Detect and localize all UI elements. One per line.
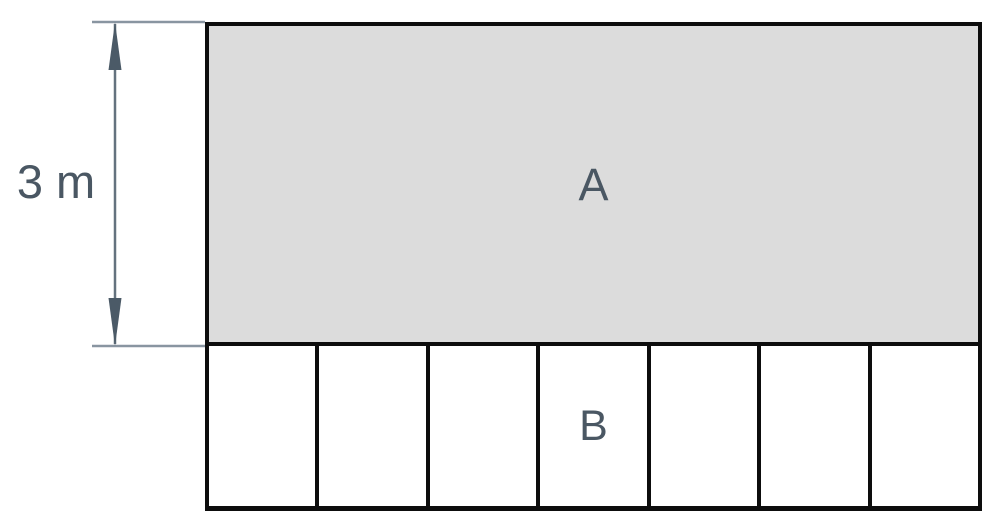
dimension-label: 3 m	[8, 156, 104, 208]
strip-cell	[868, 346, 982, 506]
strip-row: B	[205, 346, 982, 511]
region-a-label: A	[578, 162, 608, 207]
strip-cell: B	[536, 346, 646, 506]
strip-cell	[757, 346, 867, 506]
region-a: A	[205, 22, 982, 346]
figure-canvas: 3 m A B	[0, 0, 992, 524]
arrowhead-up-icon	[109, 22, 122, 70]
arrowhead-down-icon	[109, 298, 122, 346]
strip-cell	[647, 346, 757, 506]
dimension-arrow-icon	[88, 18, 212, 350]
strip-cell	[205, 346, 315, 506]
strip-cell	[315, 346, 425, 506]
strip-cell-label: B	[579, 405, 608, 448]
strip-cell	[426, 346, 536, 506]
